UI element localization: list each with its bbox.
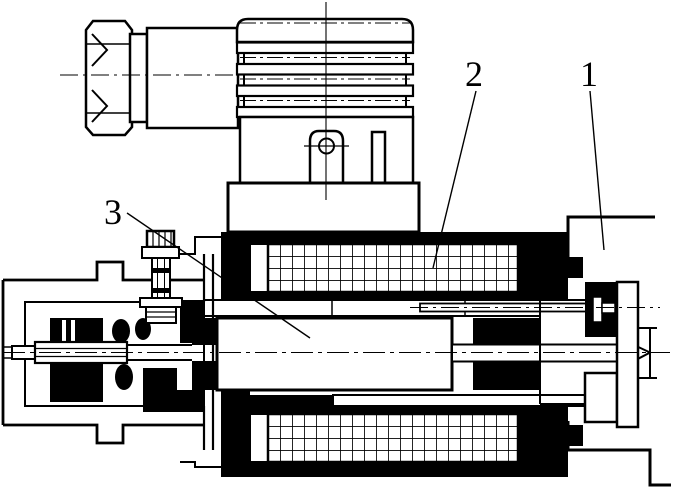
connector-rib [237, 107, 413, 117]
coil-winding-bottom [250, 414, 518, 462]
electrical-connector [237, 19, 413, 183]
solenoid-cross-section-drawing: 1 2 3 [0, 0, 673, 493]
bobbin-flange-bottom [250, 414, 268, 462]
armature-plunger [217, 318, 452, 390]
callout-1-leader [590, 91, 604, 250]
hex-chamfer-bottom [92, 90, 107, 122]
o-ring-seal [112, 319, 130, 343]
valve-assembly [3, 231, 221, 467]
connector-pin [372, 132, 385, 183]
coil-winding-top [250, 244, 518, 292]
spring-seat [585, 373, 617, 422]
figure-canvas: 1 2 3 [0, 0, 673, 493]
mounting-base [228, 183, 419, 232]
cable-gland [86, 21, 238, 135]
callout-1-label: 1 [580, 54, 598, 94]
o-ring-seal [115, 364, 133, 390]
connector-rib [237, 43, 413, 54]
connector-rib [237, 64, 413, 75]
hex-chamfer-top [92, 34, 107, 66]
connector-rib [237, 86, 413, 97]
gland-washer [130, 34, 147, 122]
callout-2-label: 2 [465, 54, 483, 94]
bobbin-flange-top [250, 244, 268, 292]
end-cap-plate [617, 282, 638, 427]
callout-3-label: 3 [104, 192, 122, 232]
adjusting-bolt [140, 231, 182, 323]
gland-cylinder [147, 28, 238, 128]
